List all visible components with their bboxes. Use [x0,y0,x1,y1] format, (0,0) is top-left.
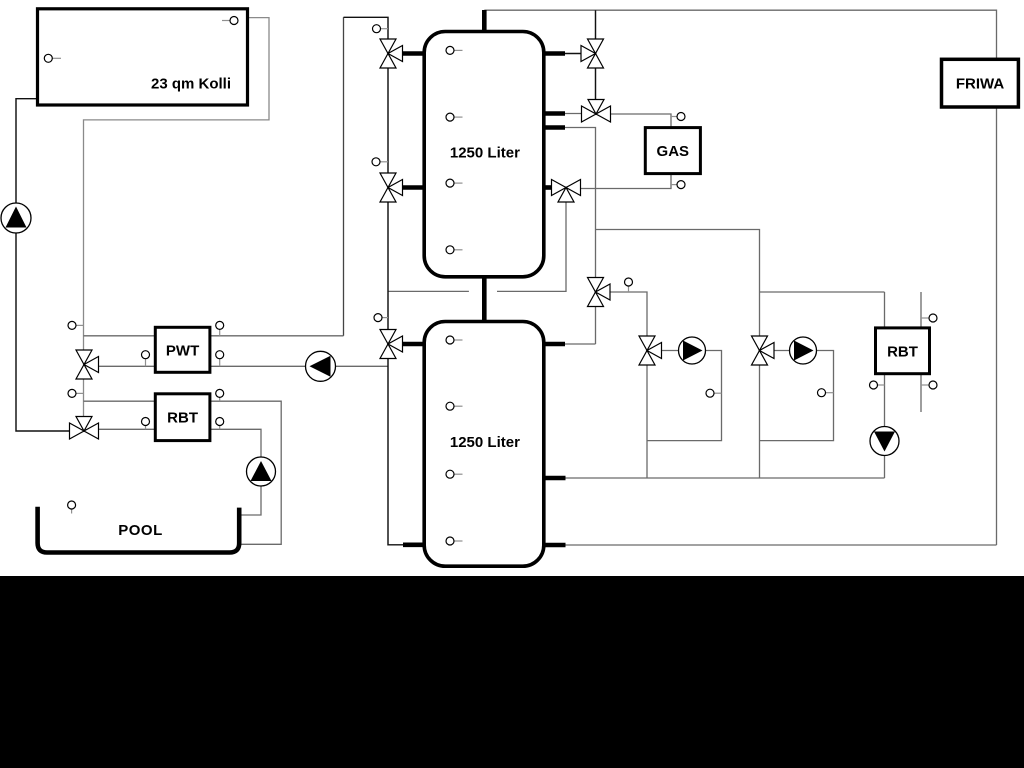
svg-text:PWT: PWT [166,343,199,360]
svg-text:GAS: GAS [657,143,690,160]
svg-text:1250 Liter: 1250 Liter [450,144,520,161]
svg-text:23 qm Kolli: 23 qm Kolli [151,76,231,93]
svg-text:FRIWA: FRIWA [956,76,1004,93]
svg-text:1250 Liter: 1250 Liter [450,434,520,451]
svg-text:RBT: RBT [887,343,918,360]
svg-text:RBT: RBT [167,410,198,427]
svg-text:POOL: POOL [118,522,163,539]
